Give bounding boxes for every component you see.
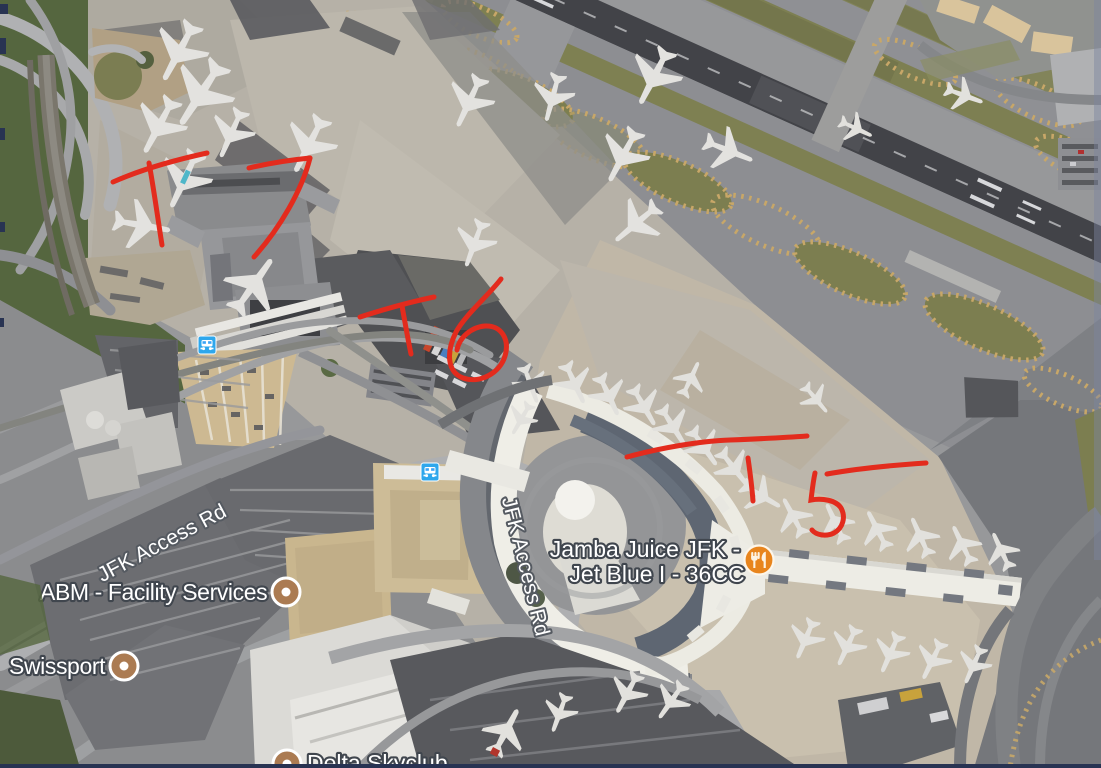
svg-text:Swissport: Swissport (9, 653, 106, 679)
svg-text:Jamba Juice JFK -: Jamba Juice JFK - (550, 536, 740, 562)
svg-text:ABM - Facility Services: ABM - Facility Services (40, 579, 267, 605)
svg-text:Jet Blue I - 36CC: Jet Blue I - 36CC (569, 561, 744, 587)
